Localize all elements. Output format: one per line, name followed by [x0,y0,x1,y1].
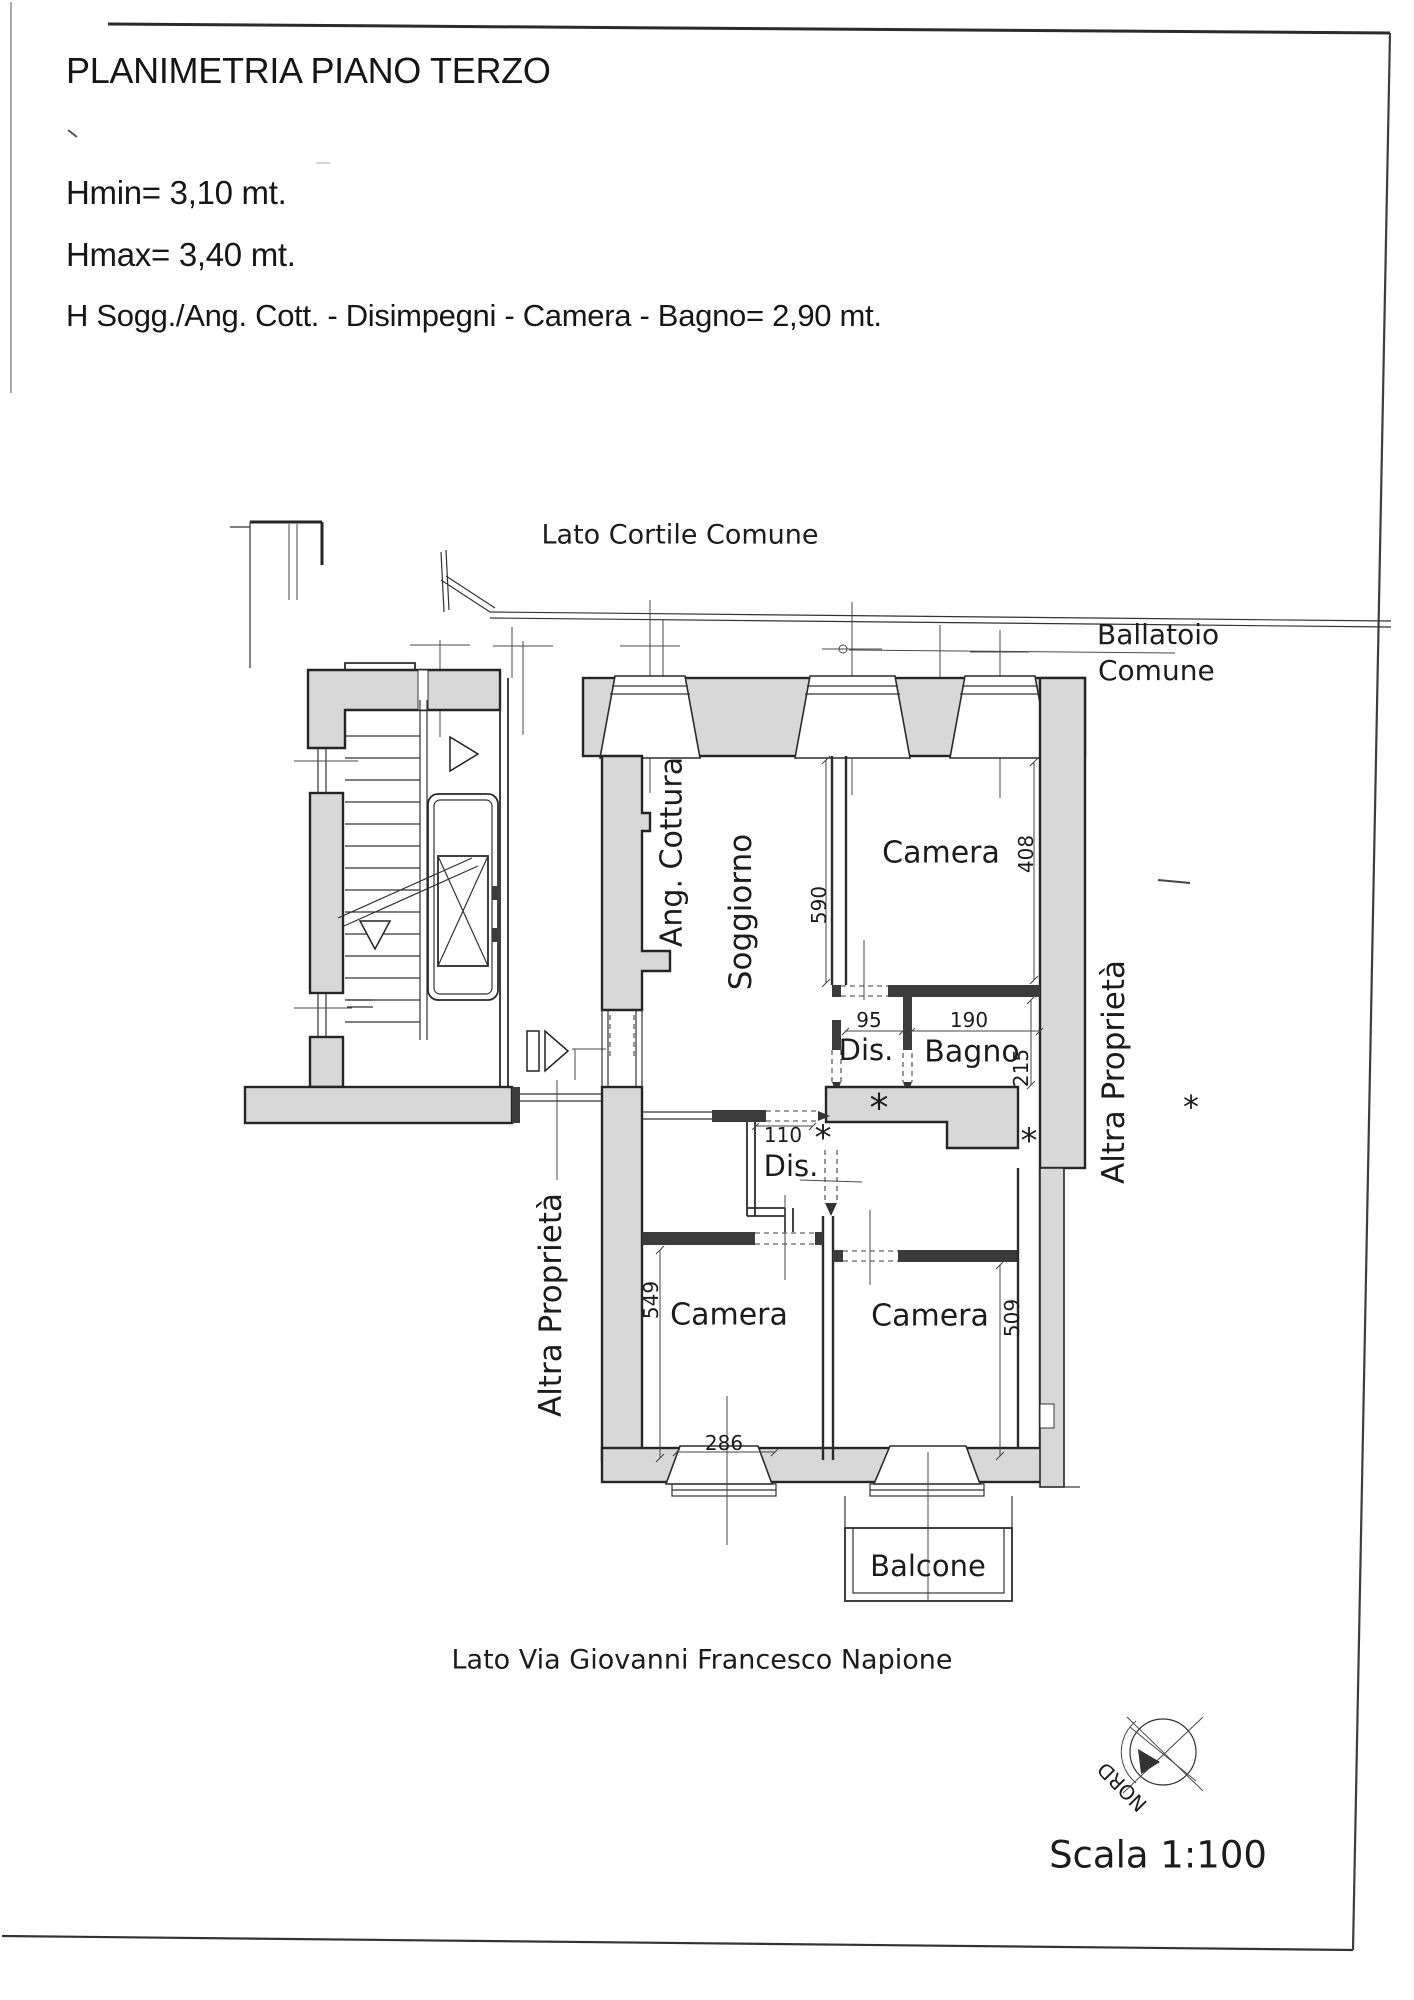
room-label-camera-bottom-right: Camera [871,1299,989,1334]
dim-95: 95 [856,1008,881,1032]
asterisk-marker: * [1183,1088,1199,1126]
label-ballatoio: Ballatoio [1097,618,1219,651]
dim-215: 215 [1009,1049,1033,1087]
label-altra-proprieta-right: Altra Proprietà [1096,960,1132,1184]
room-label-camera-top: Camera [882,836,1000,871]
label-ballatoio-comune: Comune [1098,654,1215,687]
window [795,676,910,758]
dim-549: 549 [639,1281,663,1319]
window [600,676,700,758]
room-label-dis-lower: Dis. [764,1149,819,1183]
label-altra-proprieta-left: Altra Proprietà [533,1193,569,1417]
room-label-bagno: Bagno [924,1035,1019,1070]
dim-110: 110 [764,1123,802,1147]
dim-509: 509 [1000,1299,1024,1337]
north-arrow-icon [1138,1749,1160,1774]
stairwell-left-wall-lower [310,1037,343,1087]
central-bearing-wall [826,1087,1018,1148]
scan-speck [68,130,77,137]
stairwell-left-wall [310,793,343,993]
stair-treads [345,736,420,1022]
asterisk-marker: * [815,1118,832,1158]
room-label-ang-cottura: Ang. Cottura [655,757,690,947]
asterisk-marker: * [870,1086,889,1130]
entrance-arrow-icon [527,1031,606,1080]
elevator [428,794,498,1000]
note-hmax: Hmax= 3,40 mt. [66,236,296,274]
scanned-floorplan-page: PLANIMETRIA PIANO TERZO Hmin= 3,10 mt. H… [0,0,1414,2000]
room-label-balcone: Balcone [870,1549,986,1583]
dim-590: 590 [807,886,831,924]
room-label-dis-upper: Dis. [839,1033,894,1067]
room-label-soggiorno: Soggiorno [723,834,759,990]
dim-190: 190 [950,1008,988,1032]
page-title: PLANIMETRIA PIANO TERZO [66,50,551,92]
neighbour-wall-strip [1040,1168,1064,1487]
label-lato-via: Lato Via Giovanni Francesco Napione [452,1645,953,1676]
left-exterior-wall-lower [602,1087,642,1460]
dim-286: 286 [705,1431,743,1455]
stairwell-bottom-wall [245,1087,512,1123]
stairwell [230,522,602,1180]
stair-direction-arrow-icon [450,737,478,771]
stair-direction-arrow-icon [360,921,390,949]
label-lato-cortile: Lato Cortile Comune [541,520,818,551]
window [874,1446,980,1484]
note-hmin: Hmin= 3,10 mt. [66,174,286,212]
note-room-heights: H Sogg./Ang. Cott. - Disimpegni - Camera… [66,298,882,334]
scale-label: Scala 1:100 [1049,1834,1267,1877]
window [950,676,1050,758]
right-exterior-wall-upper [1040,678,1085,1168]
room-label-camera-bottom-left: Camera [670,1298,788,1333]
asterisk-marker: * [1021,1121,1038,1161]
dim-408: 408 [1014,835,1038,873]
